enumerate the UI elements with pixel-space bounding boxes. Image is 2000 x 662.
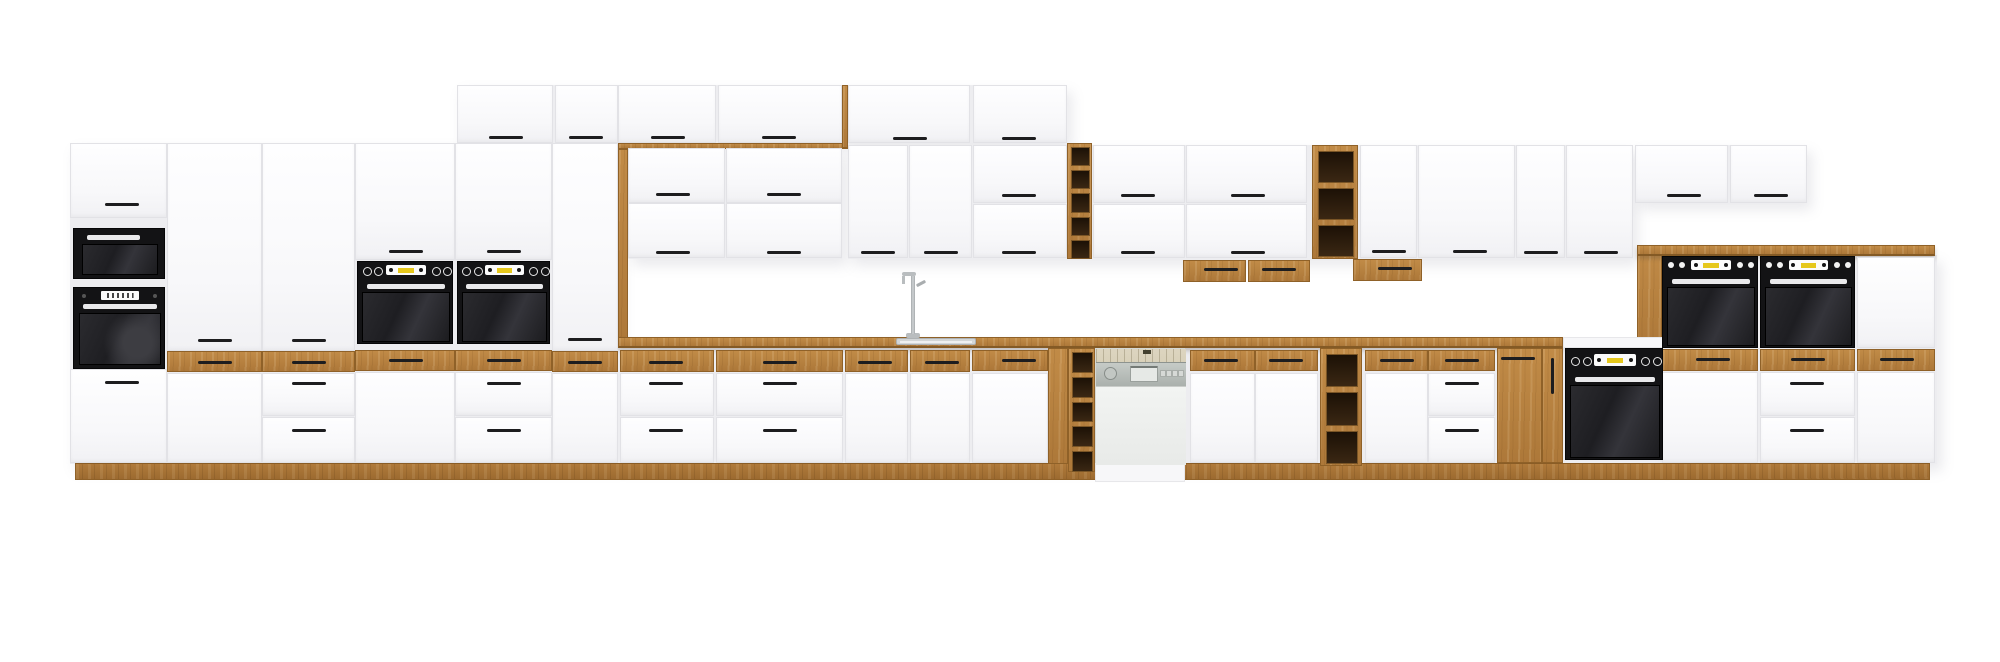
- sink-door-left: [845, 373, 908, 463]
- open-shelf-slot: [1326, 354, 1358, 387]
- oven-display: [485, 265, 524, 275]
- handle-bar: [1667, 194, 1701, 197]
- oven-knob: [1679, 262, 1685, 268]
- tall-c-drawer-2: [262, 417, 355, 463]
- open-shelf-slot: [1072, 352, 1093, 373]
- handle-bar: [763, 382, 797, 385]
- oven-knob: [82, 294, 86, 298]
- oven-handle-bar: [1770, 279, 1848, 284]
- tower-2-drawer-2: [1760, 417, 1855, 463]
- handle-bar: [763, 361, 797, 364]
- oven-knob: [529, 267, 538, 276]
- oven-display-dot: [1724, 263, 1728, 267]
- wall-cab-5-upper: [973, 145, 1067, 203]
- handle-bar: [292, 339, 326, 342]
- built-in-oven-tower-d: [357, 261, 453, 344]
- oven-display-readout: [1607, 358, 1623, 363]
- topbox-4: [718, 85, 842, 143]
- handle-bar: [1204, 268, 1238, 271]
- oven-knob: [443, 267, 452, 276]
- open-shelf-slot: [1318, 151, 1354, 183]
- tall-d-oak-drawer: [355, 350, 455, 371]
- oven-display-dot: [419, 268, 423, 272]
- open-shelf-slot: [1326, 431, 1358, 464]
- base-open-shelf-1: [1068, 348, 1095, 472]
- tall-b-bottom-door: [167, 373, 262, 463]
- oven-knob: [1653, 357, 1662, 366]
- topbox-2: [555, 85, 618, 143]
- dishwasher-logo: [1104, 367, 1117, 380]
- oven-handle-bar: [83, 304, 157, 309]
- open-shelf-slot: [1326, 392, 1358, 425]
- oven-display-readout: [398, 268, 413, 273]
- handle-bar: [568, 338, 602, 341]
- wall-cab-7-upper: [1186, 145, 1307, 203]
- handle-bar: [651, 136, 685, 139]
- right-topbox-1: [1635, 145, 1728, 203]
- oven-knob: [1737, 262, 1743, 268]
- open-shelf-slot: [1072, 377, 1093, 398]
- built-in-microwave: [73, 228, 165, 279]
- oven-glass: [462, 292, 547, 342]
- tall-b-oak-drawer: [167, 351, 262, 372]
- right-cab-top-door: [1857, 257, 1935, 348]
- sink-oak-drawer-right: [910, 350, 970, 372]
- tall-a-top-door: [70, 143, 167, 218]
- handle-bar: [569, 136, 603, 139]
- oven-handle-bar: [466, 284, 542, 289]
- built-in-oven-tower-e: [457, 261, 550, 344]
- oven-display-readout: [1703, 263, 1718, 268]
- handle-bar: [487, 250, 521, 253]
- topbox-1: [457, 85, 553, 143]
- sink-oak-drawer-left: [845, 350, 908, 372]
- base-2-drawer-2: [716, 417, 843, 463]
- handle-bar: [1231, 194, 1265, 197]
- countertop: [618, 337, 1563, 348]
- handle-bar: [1791, 358, 1825, 361]
- tall-c-drawer-1: [262, 373, 355, 416]
- base-5-oak-drawer-left: [1365, 350, 1428, 371]
- oven-housing-top-strip: [1563, 337, 1663, 348]
- oven-knob: [363, 267, 372, 276]
- faucet-lever: [916, 280, 926, 287]
- tall-b-door: [167, 143, 262, 351]
- tower-1-bottom-door: [1662, 372, 1758, 463]
- handle-bar: [487, 359, 521, 362]
- microwave-handle-bar: [87, 235, 140, 240]
- handle-bar: [1002, 359, 1036, 362]
- wall-cab-6-lower: [1093, 204, 1185, 258]
- tall-e-oak-drawer: [455, 350, 552, 371]
- handle-bar: [1002, 137, 1036, 140]
- base-3-oak-drawer: [972, 350, 1048, 371]
- open-shelf-slot: [1072, 426, 1093, 447]
- handle-bar: [858, 361, 892, 364]
- oven-glass: [1667, 287, 1755, 346]
- handle-bar: [1002, 194, 1036, 197]
- handle-bar: [649, 382, 683, 385]
- sink: [896, 338, 976, 345]
- handle-bar-vertical: [1551, 358, 1554, 394]
- oven-knob: [153, 294, 157, 298]
- wall-cab-1-upper: [628, 148, 725, 203]
- wall-cab-1-lower: [628, 203, 725, 258]
- wall-cab-8: [1360, 145, 1417, 258]
- handle-bar: [292, 361, 326, 364]
- right-cab-oak-drawer: [1857, 349, 1935, 371]
- oven-knob: [1834, 262, 1840, 268]
- oven-knob: [1583, 357, 1592, 366]
- oven-display: [1691, 260, 1731, 270]
- handle-bar: [1002, 251, 1036, 254]
- base-5-drawer-2: [1428, 417, 1495, 463]
- handle-bar: [1380, 359, 1414, 362]
- faucet-pipe: [911, 276, 915, 334]
- handle-bar: [1378, 267, 1412, 270]
- oven-display-dot: [1694, 263, 1698, 267]
- hanging-oak-box-3: [1353, 259, 1422, 281]
- handle-bar: [1754, 194, 1788, 197]
- open-shelf-slot: [1072, 451, 1093, 472]
- faucet-spout: [902, 276, 905, 284]
- tall-f-oak-drawer: [552, 351, 618, 372]
- base-1-oak-drawer: [620, 350, 714, 372]
- dishwasher-tub-slot: [1143, 350, 1151, 354]
- tall-e-top-door: [455, 143, 552, 260]
- oven-knob: [432, 267, 441, 276]
- base-1-drawer-1: [620, 373, 714, 416]
- handle-bar: [767, 193, 801, 196]
- handle-bar: [489, 136, 523, 139]
- sink-door-right: [910, 373, 970, 463]
- wall-cab-10: [1516, 145, 1565, 258]
- oven-knob: [374, 267, 383, 276]
- wall-cab-4: [909, 145, 972, 258]
- base-4-door-right: [1255, 373, 1318, 463]
- handle-bar: [568, 361, 602, 364]
- oven-display-readout: [1801, 263, 1816, 268]
- oven-display: [1789, 260, 1829, 270]
- faucet: [900, 270, 930, 338]
- base-4-oak-drawer-right: [1255, 350, 1318, 371]
- hanging-oak-box-1: [1183, 260, 1246, 282]
- handle-bar: [763, 429, 797, 432]
- handle-bar: [1880, 358, 1914, 361]
- oven-knob: [462, 267, 471, 276]
- oven-display-dot: [1822, 263, 1826, 267]
- handle-bar: [292, 382, 326, 385]
- tall-e-drawer-2: [455, 417, 552, 463]
- handle-bar: [762, 136, 796, 139]
- oven-display-dot: [389, 268, 393, 272]
- oven-knob: [1777, 262, 1783, 268]
- oven-knob: [474, 267, 483, 276]
- wall-cab-2-upper: [726, 148, 842, 203]
- handle-bar: [656, 251, 690, 254]
- handle-bar: [198, 339, 232, 342]
- tower-2-oak-drawer: [1760, 349, 1855, 371]
- built-in-oven-left: [73, 287, 165, 369]
- handle-bar: [767, 251, 801, 254]
- handle-bar: [1121, 194, 1155, 197]
- dishwasher: [1095, 348, 1185, 463]
- base-5-drawer-1: [1428, 373, 1495, 416]
- handle-bar: [1445, 429, 1479, 432]
- tower-1-oak-drawer: [1662, 349, 1758, 371]
- base-3-door: [972, 373, 1048, 463]
- open-shelf-slot: [1071, 170, 1090, 189]
- wall-cab-11: [1566, 145, 1633, 258]
- base-open-shelf-2: [1320, 348, 1362, 466]
- right-section-side-panel: [1637, 245, 1662, 348]
- oak-filler-panel: [1048, 348, 1068, 464]
- tall-c-door: [262, 143, 355, 351]
- oven-display: [1594, 354, 1635, 366]
- open-shelf-slot: [1318, 188, 1354, 220]
- handle-bar: [487, 382, 521, 385]
- plinth: [75, 463, 1930, 480]
- tall-a-bottom-door: [70, 369, 167, 463]
- handle-bar: [389, 250, 423, 253]
- wall-cab-3: [848, 145, 908, 258]
- tall-d-bottom-door: [355, 372, 455, 463]
- right-section-worktop: [1637, 245, 1935, 256]
- oven-display: [386, 265, 426, 275]
- wall-cab-9: [1418, 145, 1515, 258]
- tall-f-door: [552, 143, 618, 351]
- open-shelf-slot: [1071, 193, 1090, 212]
- oven-display-dot: [1629, 358, 1633, 362]
- handle-bar: [925, 361, 959, 364]
- microwave-glass: [82, 244, 158, 275]
- wall-cab-2-lower: [726, 203, 842, 258]
- handle-bar: [198, 361, 232, 364]
- open-shelf-slot: [1071, 147, 1090, 166]
- base-2-drawer-1: [716, 373, 843, 416]
- wall-cab-5-lower: [973, 204, 1067, 258]
- handle-bar: [1204, 359, 1238, 362]
- handle-bar: [1262, 268, 1296, 271]
- wall-open-shelf-2: [1312, 145, 1358, 259]
- tower-2-drawer-1: [1760, 372, 1855, 416]
- oven-handle-bar: [367, 284, 446, 289]
- oven-display-dot: [1791, 263, 1795, 267]
- base-5-oak-drawer-right: [1428, 350, 1495, 371]
- oven-knob: [1766, 262, 1772, 268]
- handle-bar: [861, 251, 895, 254]
- handle-bar: [1121, 251, 1155, 254]
- handle-bar: [1445, 382, 1479, 385]
- dishwasher-front-panel: [1096, 386, 1186, 465]
- handle-bar: [893, 137, 927, 140]
- open-shelf-slot: [1072, 402, 1093, 423]
- handle-bar: [487, 429, 521, 432]
- handle-bar: [389, 359, 423, 362]
- dishwasher-button: [1178, 370, 1184, 377]
- handle-bar: [105, 203, 139, 206]
- tall-d-top-door: [355, 143, 455, 260]
- oven-knob: [541, 267, 550, 276]
- oven-display-readout: [497, 268, 512, 273]
- handle-bar: [656, 193, 690, 196]
- base-4-oak-drawer-left: [1190, 350, 1255, 371]
- wall-group-left-panel: [618, 149, 628, 348]
- handle-bar: [1269, 359, 1303, 362]
- wall-cab-7-lower: [1186, 204, 1307, 258]
- base-5-door: [1365, 373, 1428, 463]
- oven-display-dot: [488, 268, 492, 272]
- wall-open-shelf-1: [1067, 143, 1092, 259]
- open-shelf-slot: [1071, 217, 1090, 236]
- hanging-oak-box-2: [1248, 260, 1310, 282]
- handle-bar: [105, 381, 139, 384]
- dishwasher-tub: [1096, 349, 1186, 362]
- handle-bar: [292, 429, 326, 432]
- double-oven-left: [1662, 256, 1758, 348]
- handle-bar: [1790, 382, 1824, 385]
- built-in-single-oven-right: [1565, 348, 1663, 460]
- kitchen-product-render: [0, 0, 2000, 662]
- oak-base-door-vertical-handle: [1542, 348, 1563, 463]
- oven-knob: [1668, 262, 1674, 268]
- oven-glass: [362, 292, 450, 342]
- handle-bar: [1524, 251, 1558, 254]
- oven-display: [101, 291, 139, 300]
- topbox-6: [973, 85, 1067, 143]
- right-cab-bottom-door: [1857, 372, 1935, 463]
- handle-bar: [1372, 250, 1406, 253]
- base-1-drawer-2: [620, 417, 714, 463]
- handle-bar: [924, 251, 958, 254]
- wall-cab-6-upper: [1093, 145, 1185, 203]
- oven-handle-bar: [1672, 279, 1751, 284]
- oven-glass: [1765, 287, 1852, 346]
- handle-bar: [1790, 429, 1824, 432]
- tall-f-bottom-door: [552, 373, 618, 463]
- dishwasher-handle-recess: [1130, 366, 1158, 382]
- oak-base-door-horizontal-handle: [1497, 348, 1542, 463]
- oven-glass: [79, 313, 161, 365]
- oven-knob: [1571, 357, 1580, 366]
- handle-bar: [1501, 357, 1535, 360]
- handle-bar: [649, 429, 683, 432]
- handle-bar: [1453, 250, 1487, 253]
- topbox-3: [618, 85, 716, 143]
- oven-glass: [1570, 385, 1660, 458]
- topbox-5: [848, 85, 970, 143]
- handle-bar: [1696, 358, 1730, 361]
- tall-e-drawer-1: [455, 372, 552, 416]
- open-shelf-slot: [1318, 225, 1354, 257]
- oven-knob: [1748, 262, 1754, 268]
- right-topbox-2: [1730, 145, 1807, 203]
- double-oven-right: [1760, 256, 1855, 348]
- base-2-oak-drawer: [716, 350, 843, 372]
- oven-handle-bar: [1575, 377, 1655, 382]
- open-shelf-slot: [1071, 240, 1090, 259]
- oven-display-dot: [1597, 358, 1601, 362]
- base-4-door-left: [1190, 373, 1255, 463]
- handle-bar: [649, 361, 683, 364]
- handle-bar: [1445, 359, 1479, 362]
- tall-c-oak-drawer: [262, 351, 355, 372]
- handle-bar: [1231, 251, 1265, 254]
- dishwasher-recess: [1095, 462, 1185, 482]
- oven-knob: [1845, 262, 1851, 268]
- handle-bar: [1584, 251, 1618, 254]
- oven-display-dot: [517, 268, 521, 272]
- oven-knob: [1641, 357, 1650, 366]
